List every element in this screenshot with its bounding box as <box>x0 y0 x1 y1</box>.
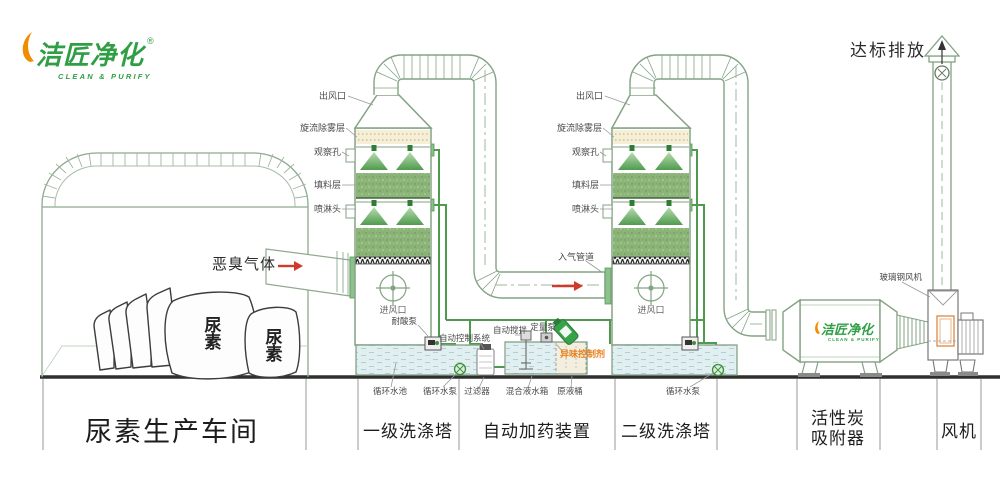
packing-layer-1 <box>356 173 430 198</box>
section-tower2: 二级洗涤塔 <box>621 422 711 441</box>
demister-layer <box>613 130 689 144</box>
control-system-label: 自动控制系统 <box>439 333 491 343</box>
tower2-demister-label: 旋流除雾层 <box>557 122 602 133</box>
fan-callout: 玻璃钢风机 <box>879 272 930 297</box>
discharge-stack <box>925 36 959 290</box>
emission-label: 达标排放 <box>850 41 926 60</box>
acid-pump-2 <box>682 337 698 350</box>
carbon-adsorber: 洁匠净化 CLEAN & PURIFY <box>783 300 928 377</box>
tower1-air-inlet-label: 进风口 <box>379 305 406 315</box>
tower2-viewport-label: 观察孔 <box>572 146 599 157</box>
support-grid <box>613 257 689 264</box>
roof-ribs <box>42 153 308 198</box>
gas-duct: 恶臭气体 <box>212 249 355 298</box>
scrubber-tower-2: 进风口 <box>603 95 737 375</box>
filter-label: 过滤器 <box>464 386 490 396</box>
process-diagram: 洁匠净化 ® CLEAN & PURIFY 尿素 尿素 恶臭气体 <box>0 0 1000 482</box>
section-dosing: 自动加药装置 <box>483 422 591 441</box>
frp-fan <box>928 290 983 376</box>
circ-pump-2 <box>713 365 724 376</box>
gas-label: 恶臭气体 <box>212 256 276 273</box>
packing-layer-1 <box>613 173 689 198</box>
raw-barrel-label: 原液桶 <box>557 386 583 396</box>
circ-pump-1 <box>455 364 466 375</box>
circ-pump-label: 循环水泵 <box>423 386 458 396</box>
tower2-packing-label: 填料层 <box>572 179 599 190</box>
section-fan: 风机 <box>941 422 977 441</box>
circ-pump2-label: 循环水泵 <box>666 386 701 396</box>
auto-stir-label: 自动搅拌 <box>493 325 528 335</box>
section-carbon-line1: 活性炭 <box>811 409 865 428</box>
urea-bag-label: 尿素 <box>202 316 222 351</box>
tower1-outlet-label: 出风口 <box>319 90 346 101</box>
viewport-port <box>603 205 612 218</box>
brand-logo: 洁匠净化 ® CLEAN & PURIFY <box>23 32 154 81</box>
reducer-bellows <box>897 315 928 349</box>
tower2-spray-label: 喷淋头 <box>572 203 599 214</box>
tower1-spray-label: 喷淋头 <box>314 203 341 214</box>
section-workshop: 尿素生产车间 <box>85 417 259 447</box>
demister-layer <box>356 130 430 144</box>
viewport-port <box>346 205 355 218</box>
odor-agent-label: 异味控制剂 <box>560 348 605 359</box>
circ-pool-label: 循环水池 <box>373 386 408 396</box>
section-tower1: 一级洗涤塔 <box>363 422 453 441</box>
viewport-port <box>603 149 612 162</box>
packing-layer-2 <box>356 228 430 257</box>
metering-pump-label: 定量泵 <box>530 322 556 332</box>
support-grid <box>356 257 430 264</box>
tower2-outlet-label: 出风口 <box>576 90 603 101</box>
brand-registered-mark: ® <box>147 36 154 46</box>
tower1-viewport-label: 观察孔 <box>314 146 341 157</box>
tower1-demister-label: 旋流除雾层 <box>300 122 345 133</box>
tower1-packing-label: 填料层 <box>314 179 341 190</box>
frp-fan-label: 玻璃钢风机 <box>879 272 922 282</box>
brand-name: 洁匠净化 <box>36 40 147 70</box>
urea-bags: 尿素 尿素 <box>94 288 300 379</box>
filter-canister <box>477 344 494 375</box>
adsorber-brand-name: 洁匠净化 <box>821 322 875 337</box>
packing-layer-2 <box>613 228 689 257</box>
tower2-air-inlet-label: 进风口 <box>637 305 664 315</box>
brand-swoosh-icon <box>23 32 34 62</box>
section-carbon-line2: 吸附器 <box>811 429 865 448</box>
brand-subtitle: CLEAN & PURIFY <box>58 72 152 81</box>
adsorber-brand-subtitle: CLEAN & PURIFY <box>828 337 880 342</box>
urea-bag-label: 尿素 <box>263 328 283 363</box>
diagram-svg: 洁匠净化 ® CLEAN & PURIFY 尿素 尿素 恶臭气体 <box>0 0 1000 482</box>
section-labels: 尿素生产车间 一级洗涤塔 自动加药装置 二级洗涤塔 活性炭 吸附器 风机 <box>85 409 977 448</box>
inlet-duct-label: 入气管道 <box>558 251 594 262</box>
mixing-tank-label: 混合液水箱 <box>506 386 549 396</box>
acid-pump-label: 耐酸泵 <box>391 316 417 326</box>
